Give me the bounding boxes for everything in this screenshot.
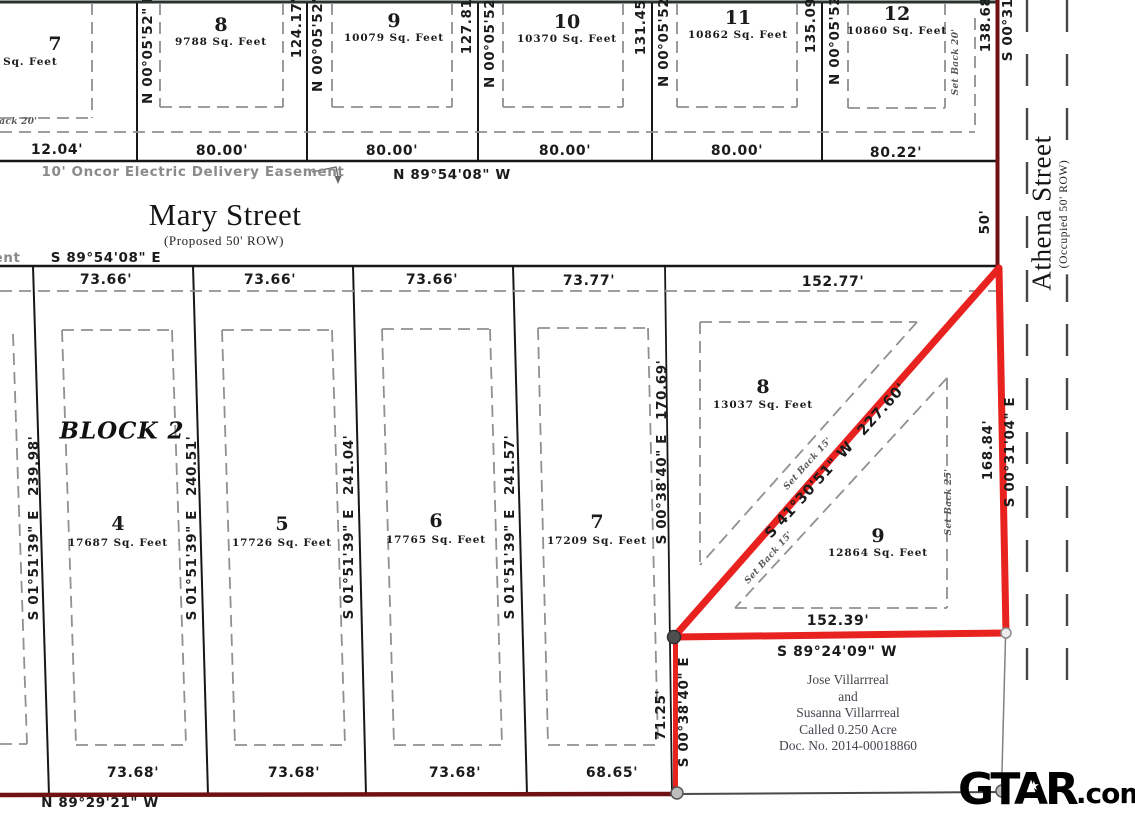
athena-street-name: Athena Street [1027,135,1058,291]
setback-label-lot9-east: Set Back 25' [944,469,954,536]
dim-text: 170.69' [654,360,670,420]
lot8-area: 13037 Sq. Feet [713,399,813,411]
dim-text: 241.57' [502,435,518,495]
tract-south-line [677,792,1003,794]
bearing-text: S 00°38'40" E [654,434,670,544]
dim-text: 239.98' [26,436,42,496]
dim-mid-3: 73.66' [406,272,458,288]
corner-node-se [1001,628,1011,638]
mary-street-name: Mary Street [149,197,302,233]
bearing-top-2: N 00°05'52" E [310,0,326,92]
lot9-number: 9 [871,525,884,547]
dim-triangle-right: 168.84' [980,420,996,480]
bearing-tract-west: S 00°38'40" E [676,657,692,767]
bearing-mary-south: S 89°54'08" E [51,250,161,266]
bearing-top-1: N 00°05'52" E [140,0,156,104]
top-lot9-number: 9 [387,10,400,32]
top-lot10-area: 10370 Sq. Feet [517,33,617,45]
bearing-text: S 01°51'39" E [502,509,518,619]
lot4-number: 4 [111,513,124,535]
bearing-top-3: N 00°05'52" E [482,0,498,88]
dim-top-frontage-3: 80.00' [366,143,418,159]
top-lot11-number: 11 [725,7,751,29]
top-lot11-area: 10862 Sq. Feet [688,29,788,41]
dim-top-frontage-5: 80.00' [711,143,763,159]
lot5-area: 17726 Sq. Feet [232,537,332,549]
dim-top-frontage-2: 80.00' [196,143,248,159]
dim-bottom-4: 68.65' [586,765,638,781]
bearing-mary-north: N 89°54'08" W [393,167,511,183]
lot4-area: 17687 Sq. Feet [68,537,168,549]
bearing-top-4: N 00°05'52" E [656,0,672,87]
setback-label-lot7: Set Back 20' [0,117,37,127]
dim-lot12-side: 138.68' [978,0,994,52]
lot6-number: 6 [429,510,442,532]
bearing-text: S 01°51'39" E [184,510,200,620]
dim-lot11-side: 135.09' [803,0,819,53]
top-lot9-area: 10079 Sq. Feet [344,32,444,44]
easement-fragment: ent [0,250,21,266]
block2-label: BLOCK 2 [60,418,185,445]
dim-text: 240.51' [184,436,200,496]
dim-lot9-side: 127.81' [459,0,475,54]
top-lot7-area: 0 Sq. Feet [0,56,58,68]
lot7-area: 17209 Sq. Feet [547,535,647,547]
owner-line: Doc. No. 2014-00018860 [757,738,939,755]
dim-mid-5: 152.77' [802,274,865,290]
bearing-south-boundary: N 89°29'21" W [41,795,159,811]
lot7-number: 7 [590,511,603,533]
top-lot12-area: 10860 Sq. Feet [847,25,947,37]
bearing-triangle-right: S 00°31'04" E [1002,397,1018,507]
lot5-side-label: S 01°51'39" E240.51' [184,436,200,621]
lot8-number: 8 [756,376,769,398]
dim-bottom-2: 73.68' [268,765,320,781]
plat-map: 124.17' 127.81' 131.45' 135.09' 138.68' … [0,0,1135,813]
bearing-text: S 01°51'39" E [26,510,42,620]
top-lot12-number: 12 [884,3,910,25]
dim-mid-4: 73.77' [563,273,615,289]
dim-tract-west: 71.25' [653,690,669,740]
top-lot8-number: 8 [214,14,227,36]
owner-line: and [757,689,939,706]
dim-mid-1: 73.66' [80,272,132,288]
lot7-side-label: S 01°51'39" E241.57' [502,435,518,620]
plat-drawing [0,0,1135,813]
gtar-watermark: GTAR ★ .com [958,760,1135,813]
dim-bottom-3: 73.68' [429,765,481,781]
gtar-logo-suffix: .com [1076,775,1135,813]
dim-top-frontage-1: 12.04' [31,142,83,158]
setback-label-lot12: Set Back 20' [951,29,961,96]
dim-top-frontage-4: 80.00' [539,143,591,159]
athena-width-label: 50' [977,210,993,235]
owner-line: Jose Villarrreal [757,672,939,689]
easement-label: 10' Oncor Electric Delivery Easement [42,164,345,180]
dim-triangle-bottom: 152.39' [807,613,870,629]
top-lot10-number: 10 [554,11,580,33]
mary-street-row: (Proposed 50' ROW) [164,233,284,249]
dim-lot8-side: 124.17' [289,0,305,58]
dim-text: 241.04' [341,435,357,495]
dim-lot10-side: 131.45' [633,0,649,55]
lot4-side-label: S 01°51'39" E239.98' [26,436,42,621]
lot5-number: 5 [275,513,288,535]
owner-line: Susanna Villarrreal [757,705,939,722]
lot6-side-label: S 01°51'39" E241.04' [341,435,357,620]
dim-bottom-1: 73.68' [107,765,159,781]
dim-top-frontage-6: 80.22' [870,145,922,161]
top-lot7-number: 7 [48,33,61,55]
athena-street-row: (Occupied 50' ROW) [1058,154,1070,275]
lot9-area: 12864 Sq. Feet [828,547,928,559]
bearing-text: S 01°51'39" E [341,509,357,619]
bearing-athena-top: S 00°31'04" E [1000,0,1016,61]
gtar-logo-text: GTAR [958,767,1076,813]
star-icon: ★ [1028,780,1040,793]
bearing-triangle-bottom: S 89°24'09" W [777,644,897,660]
lot6-area: 17765 Sq. Feet [386,534,486,546]
owner-line: Called 0.250 Acre [757,722,939,739]
corner-node-sw [668,631,681,644]
dim-mid-2: 73.66' [244,272,296,288]
bearing-top-5: N 00°05'52" E [827,0,843,85]
corner-node-bottom-left [671,787,683,799]
top-lot-boundaries [137,3,822,161]
athena-street-dashes [1027,0,1067,686]
lot8-west-label: S 00°38'40" E170.69' [654,360,670,545]
adjoining-owner-note: Jose Villarrreal and Susanna Villarrreal… [757,672,939,755]
top-lot8-area: 9788 Sq. Feet [175,36,267,48]
